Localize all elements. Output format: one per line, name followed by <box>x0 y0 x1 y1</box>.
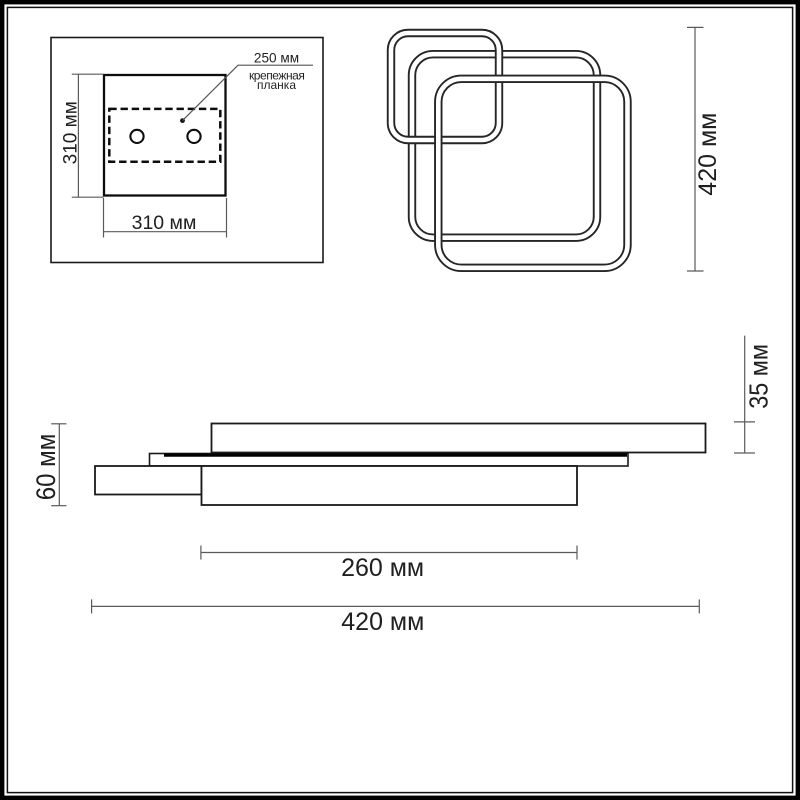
svg-text:420 мм: 420 мм <box>694 113 722 196</box>
svg-text:35 мм: 35 мм <box>744 344 774 409</box>
svg-text:310 мм: 310 мм <box>60 101 81 164</box>
svg-text:250 мм: 250 мм <box>254 51 299 66</box>
svg-text:420 мм: 420 мм <box>341 608 424 636</box>
svg-text:310 мм: 310 мм <box>132 212 197 234</box>
svg-text:60 мм: 60 мм <box>31 434 61 501</box>
svg-text:260 мм: 260 мм <box>341 554 424 582</box>
svg-text:планка: планка <box>257 78 296 92</box>
